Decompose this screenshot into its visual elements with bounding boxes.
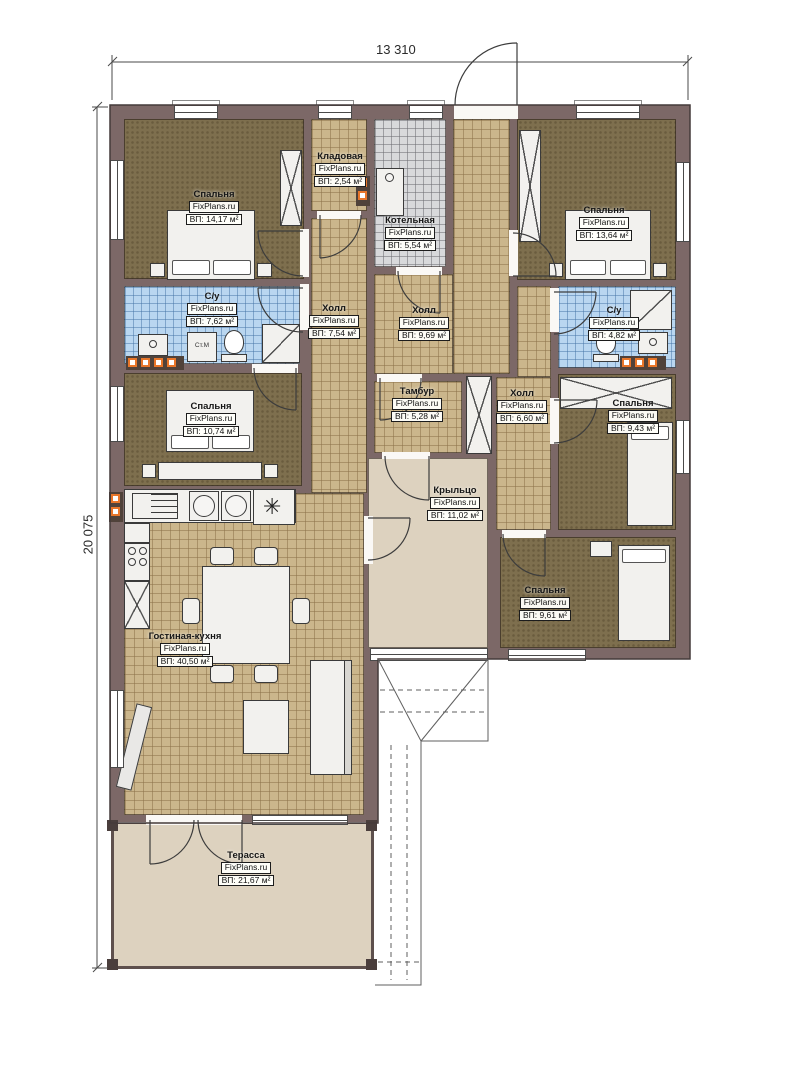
nightstand — [150, 263, 165, 277]
ventilation-symbol: ✳ — [263, 496, 281, 518]
room-label-bathroom-left: С/у FixPlans.ru ВП: 7,62 м² — [169, 292, 255, 327]
vent-icon — [128, 358, 137, 367]
vent-icon — [154, 358, 163, 367]
toilet — [224, 330, 244, 354]
room-floor-hall-left — [311, 218, 367, 493]
chair — [210, 665, 234, 683]
door-opening — [300, 229, 309, 277]
sink-faucet — [149, 340, 157, 348]
toilet-tank — [221, 354, 247, 362]
sofa-back — [344, 661, 351, 774]
radiator-vents — [620, 356, 666, 370]
door-opening-entry — [454, 105, 518, 119]
kitchen-cabinet — [124, 523, 150, 543]
room-label-vestibule: Тамбур FixPlans.ru ВП: 5,28 м² — [374, 387, 460, 422]
vent-icon — [141, 358, 150, 367]
vent-icon — [167, 358, 176, 367]
burner-icon — [225, 495, 247, 517]
vent-icon — [648, 358, 657, 367]
chair — [292, 598, 310, 624]
door-opening — [396, 267, 442, 275]
vent-icon — [635, 358, 644, 367]
coffee-table — [243, 700, 289, 754]
fridge — [124, 581, 150, 629]
nightstand — [257, 263, 272, 277]
vent-icon — [358, 191, 367, 200]
door-opening — [252, 364, 298, 373]
room-floor-hall-right-strip — [517, 286, 551, 377]
terrace-post — [366, 959, 377, 970]
burner-icon — [139, 547, 147, 555]
pillow — [610, 260, 646, 275]
room-label-hall-right: Холл FixPlans.ru ВП: 6,60 м² — [479, 389, 565, 424]
terrace-deck — [111, 823, 374, 969]
door-opening — [509, 230, 518, 276]
chair — [210, 547, 234, 565]
room-label-hall-left: Холл FixPlans.ru ВП: 7,54 м² — [291, 304, 377, 339]
window — [676, 420, 690, 474]
porch-step — [370, 648, 488, 661]
door-opening — [502, 530, 546, 538]
roof-overhang-outline — [375, 659, 488, 985]
window — [409, 105, 443, 119]
window — [110, 690, 124, 768]
chair — [254, 547, 278, 565]
room-label-bedroom-top-left: Спальня FixPlans.ru ВП: 14,17 м² — [171, 190, 257, 225]
chair — [254, 665, 278, 683]
door-opening — [382, 452, 430, 459]
washing-machine: Ст.М — [187, 332, 217, 362]
window — [508, 649, 586, 661]
floor-plan: Ст.М ✳ — [0, 0, 792, 1080]
radiator-vents — [126, 356, 184, 370]
window — [174, 105, 218, 119]
wardrobe — [519, 130, 541, 242]
window — [110, 386, 124, 442]
nightstand — [142, 464, 156, 478]
room-label-living-kitchen: Гостиная-кухня FixPlans.ru ВП: 40,50 м² — [142, 632, 228, 667]
room-label-boiler-room: Котельная FixPlans.ru ВП: 5,54 м² — [367, 216, 453, 251]
pillow — [213, 260, 251, 275]
door-opening — [550, 288, 559, 332]
terrace-post — [107, 959, 118, 970]
nightstand — [264, 464, 278, 478]
room-label-porch: Крыльцо FixPlans.ru ВП: 11,02 м² — [412, 486, 498, 521]
vent-icon — [111, 494, 120, 503]
dimension-width: 13 310 — [372, 42, 420, 57]
room-label-bedroom-mid-left: Спальня FixPlans.ru ВП: 10,74 м² — [168, 402, 254, 437]
terrace-post — [366, 820, 377, 831]
boiler-dial — [385, 173, 394, 182]
room-label-bedroom-bottom-right: Спальня FixPlans.ru ВП: 9,61 м² — [502, 586, 588, 621]
vent-icon — [622, 358, 631, 367]
burner-icon — [193, 495, 215, 517]
burner-icon — [128, 558, 136, 566]
door-opening-terrace — [146, 815, 242, 825]
pillow — [570, 260, 606, 275]
terrace-post — [107, 820, 118, 831]
room-label-terrace: Терасса FixPlans.ru ВП: 21,67 м² — [203, 851, 289, 886]
burner-icon — [128, 547, 136, 555]
nightstand — [653, 263, 667, 277]
room-label-hall-center: Холл FixPlans.ru ВП: 9,69 м² — [381, 306, 467, 341]
washing-machine-label: Ст.М — [188, 342, 216, 349]
bench — [158, 462, 262, 480]
vent-icon — [111, 507, 120, 516]
dimension-height: 20 075 — [81, 491, 96, 579]
window — [676, 162, 690, 242]
room-label-storage: Кладовая FixPlans.ru ВП: 2,54 м² — [297, 152, 383, 187]
window — [252, 815, 348, 825]
chair — [182, 598, 200, 624]
room-label-bedroom-top-right: Спальня FixPlans.ru ВП: 13,64 м² — [561, 206, 647, 241]
kitchen-sink — [132, 493, 178, 519]
window — [576, 105, 640, 119]
window — [110, 160, 124, 240]
nightstand — [549, 263, 563, 277]
nightstand — [590, 541, 612, 557]
pillow — [622, 549, 666, 563]
door-opening — [364, 516, 373, 564]
pillow — [172, 260, 210, 275]
burner-icon — [139, 558, 147, 566]
window — [318, 105, 352, 119]
room-label-bathroom-right: С/у FixPlans.ru ВП: 4,82 м² — [571, 306, 657, 341]
room-label-bedroom-right: Спальня FixPlans.ru ВП: 9,43 м² — [590, 399, 676, 434]
toilet-tank — [593, 354, 619, 362]
door-opening — [317, 211, 361, 219]
sofa — [310, 660, 352, 775]
door-opening — [377, 374, 422, 382]
radiator-vents — [109, 492, 123, 522]
